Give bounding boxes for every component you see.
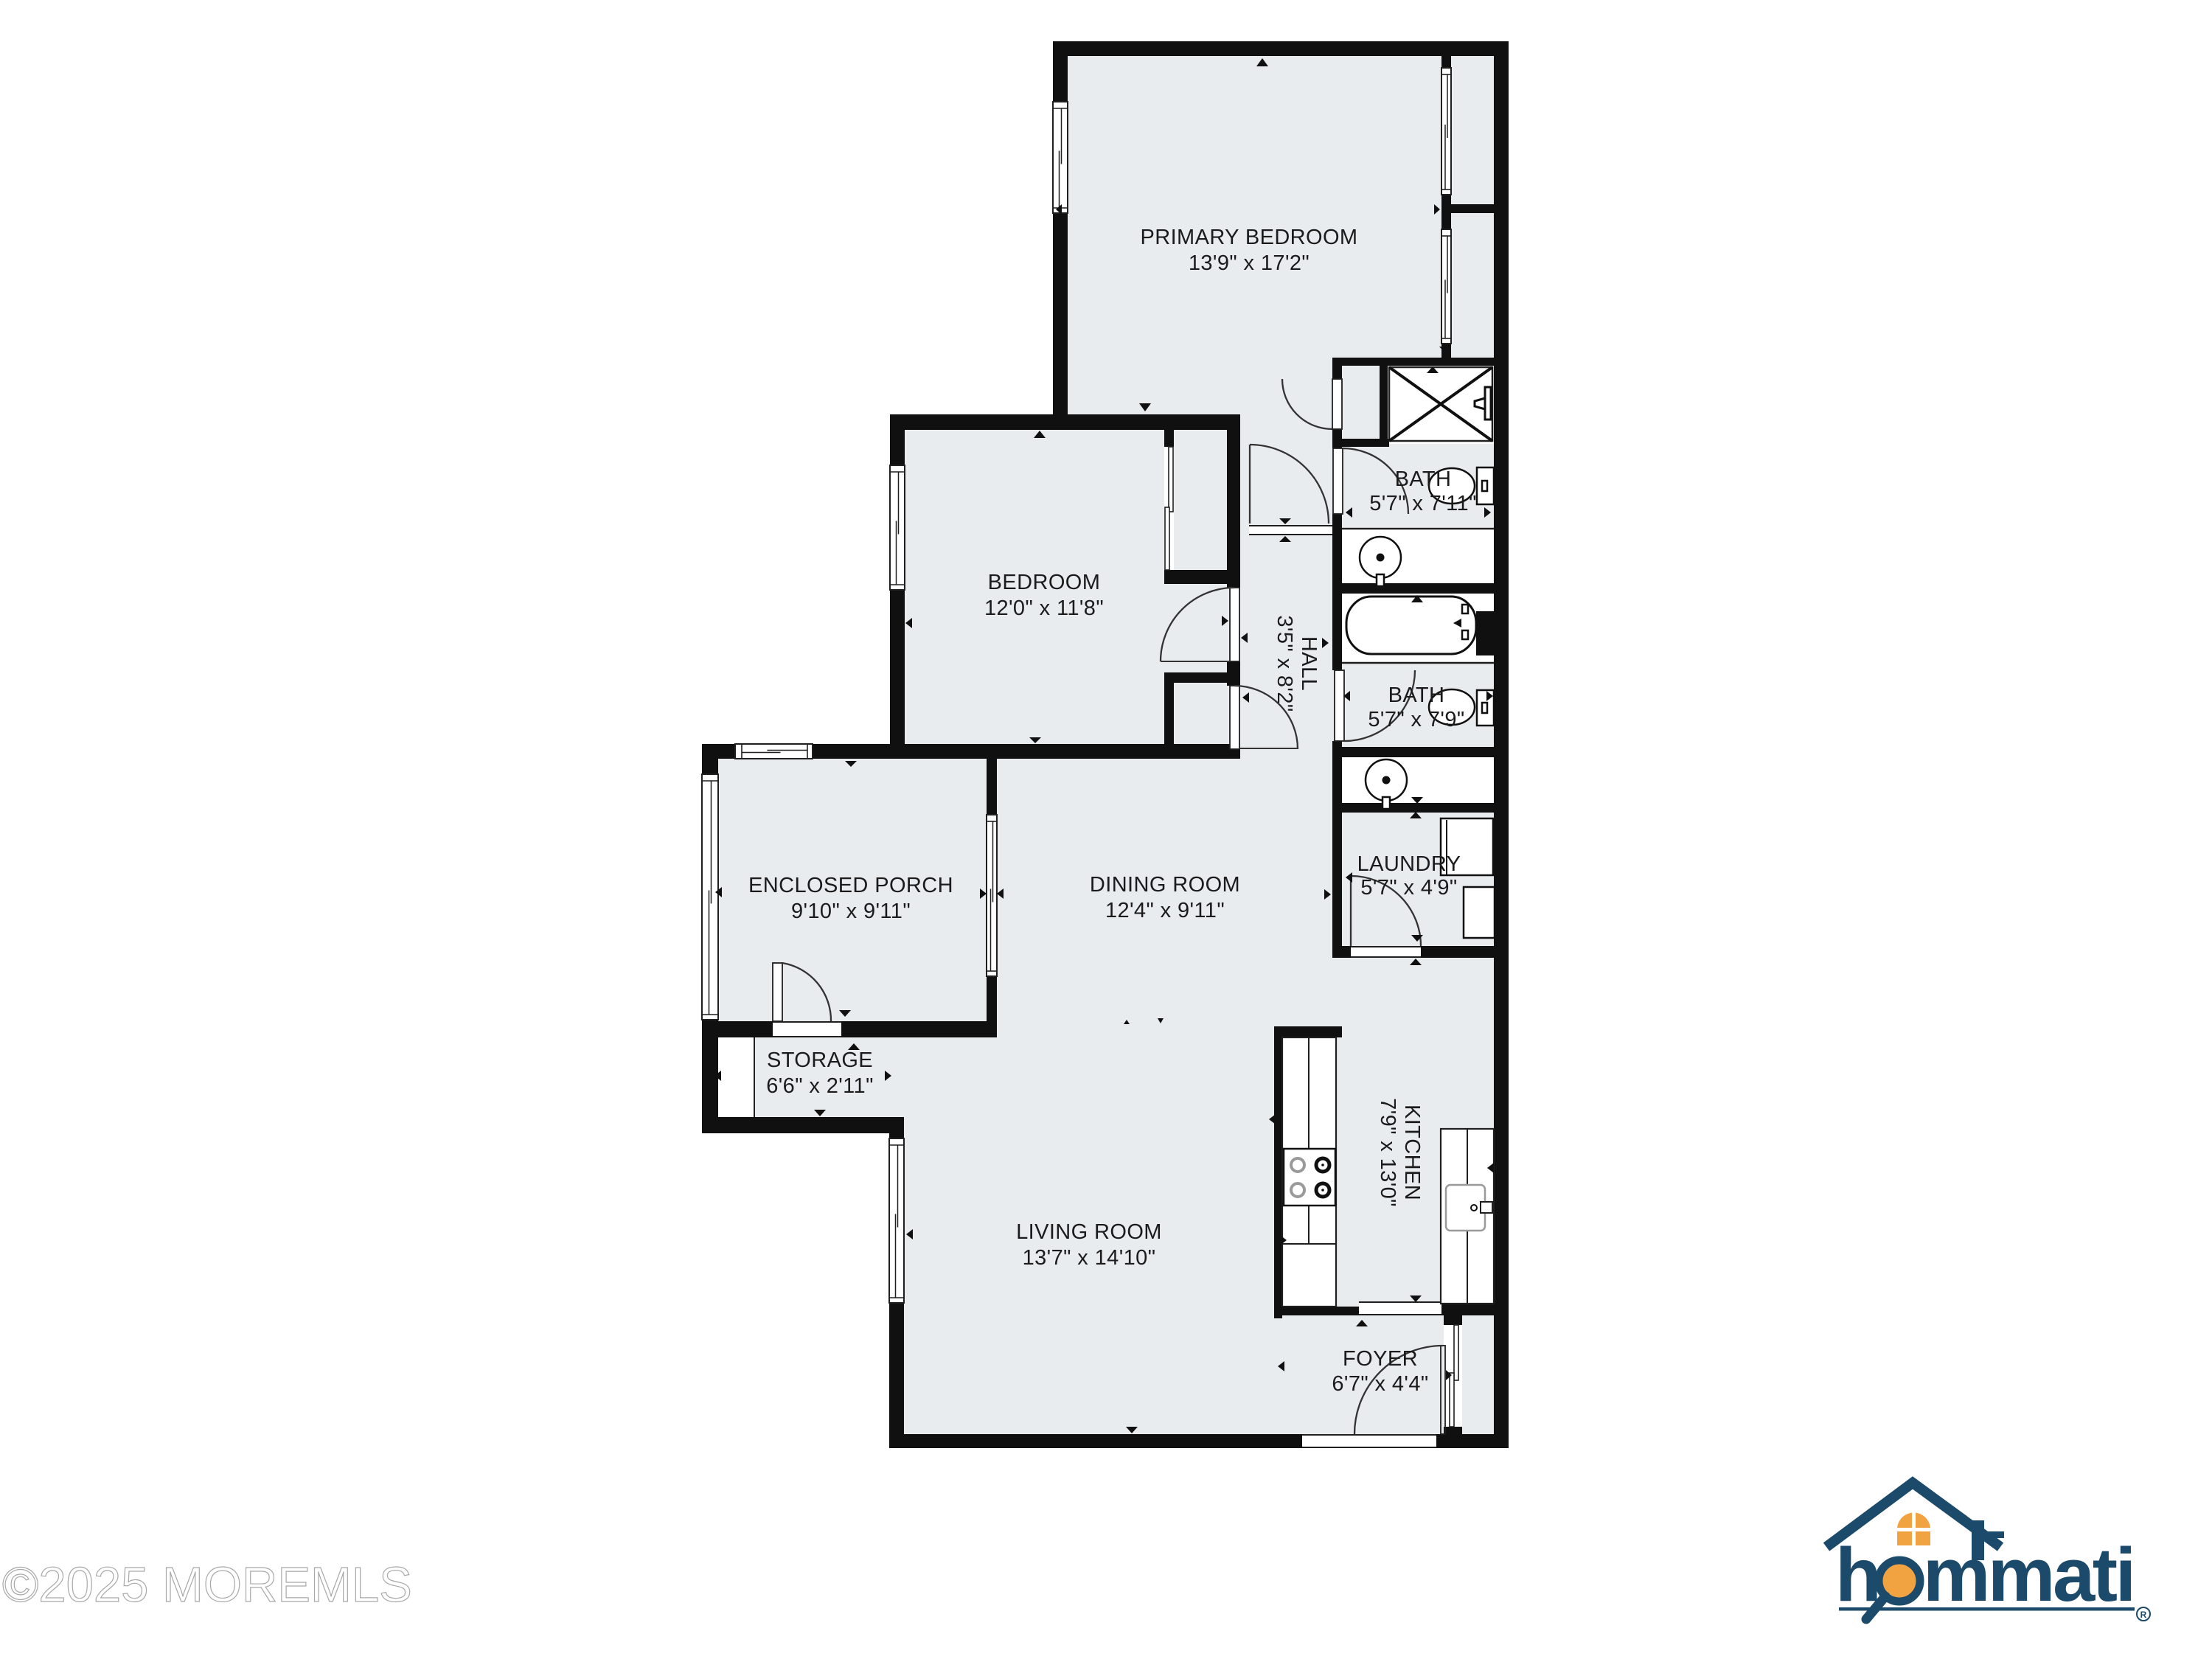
svg-text:LAUNDRY: LAUNDRY (1357, 852, 1461, 876)
svg-text:BATH: BATH (1395, 467, 1452, 491)
svg-text:12'0" x 11'8": 12'0" x 11'8" (984, 597, 1104, 620)
svg-text:PRIMARY BEDROOM: PRIMARY BEDROOM (1141, 226, 1358, 249)
svg-text:6'6" x 2'11": 6'6" x 2'11" (766, 1074, 874, 1098)
svg-text:5'7" x 7'9": 5'7" x 7'9" (1368, 708, 1464, 731)
svg-text:R: R (2140, 1610, 2147, 1620)
svg-text:5'7" x 4'9": 5'7" x 4'9" (1360, 876, 1457, 900)
svg-text:BEDROOM: BEDROOM (988, 571, 1101, 594)
svg-text:BATH: BATH (1388, 684, 1445, 707)
svg-text:FOYER: FOYER (1343, 1347, 1418, 1371)
svg-text:12'4" x 9'11": 12'4" x 9'11" (1105, 899, 1225, 922)
svg-text:7'9" x 13'0": 7'9" x 13'0" (1376, 1098, 1399, 1207)
svg-text:9'10" x 9'11": 9'10" x 9'11" (791, 900, 911, 923)
svg-text:HALL: HALL (1297, 636, 1321, 691)
svg-text:6'7" x 4'4": 6'7" x 4'4" (1332, 1372, 1428, 1396)
svg-text:13'7" x 14'10": 13'7" x 14'10" (1023, 1246, 1156, 1270)
svg-text:KITCHEN: KITCHEN (1400, 1105, 1424, 1200)
svg-text:DINING ROOM: DINING ROOM (1090, 873, 1240, 897)
svg-text:13'9" x 17'2": 13'9" x 17'2" (1189, 251, 1310, 275)
svg-text:3'5" x 8'2": 3'5" x 8'2" (1273, 615, 1296, 712)
svg-text:5'7" x 7'11": 5'7" x 7'11" (1369, 492, 1477, 515)
svg-text:STORAGE: STORAGE (767, 1048, 873, 1072)
svg-text:©2025 MOREMLS: ©2025 MOREMLS (2, 1557, 412, 1613)
svg-text:ENCLOSED PORCH: ENCLOSED PORCH (748, 874, 953, 897)
svg-text:LIVING ROOM: LIVING ROOM (1016, 1220, 1162, 1244)
